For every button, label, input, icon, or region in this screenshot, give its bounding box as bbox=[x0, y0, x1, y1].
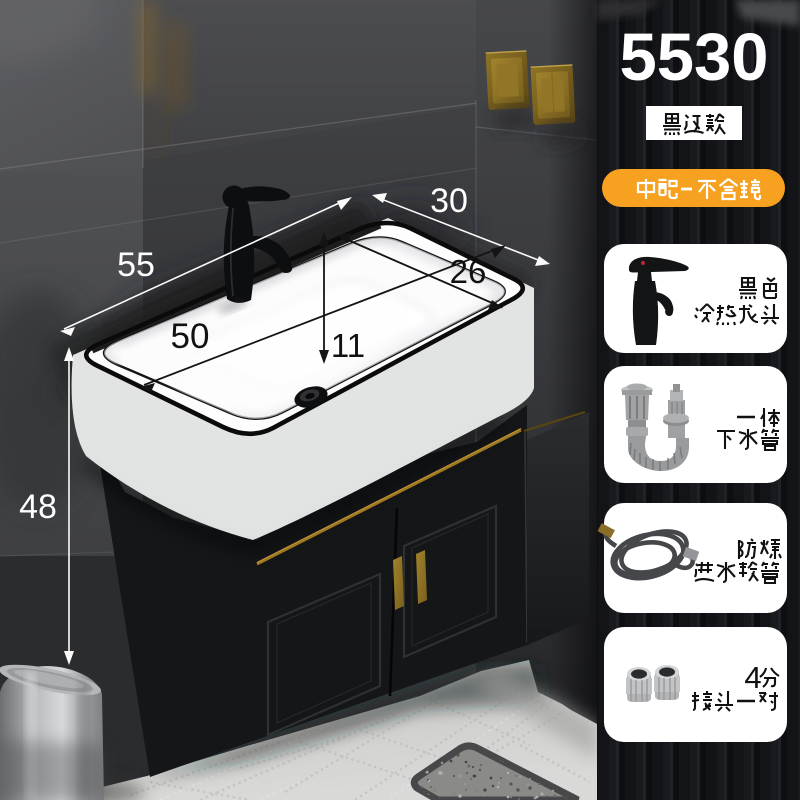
svg-text:5530: 5530 bbox=[619, 20, 768, 95]
svg-text:26: 26 bbox=[450, 253, 487, 290]
svg-text:48: 48 bbox=[19, 488, 57, 526]
svg-text:50: 50 bbox=[171, 317, 210, 356]
svg-text:30: 30 bbox=[430, 182, 468, 220]
svg-text:55: 55 bbox=[117, 246, 155, 284]
svg-text:11: 11 bbox=[331, 327, 365, 364]
svg-text:4: 4 bbox=[744, 660, 761, 695]
